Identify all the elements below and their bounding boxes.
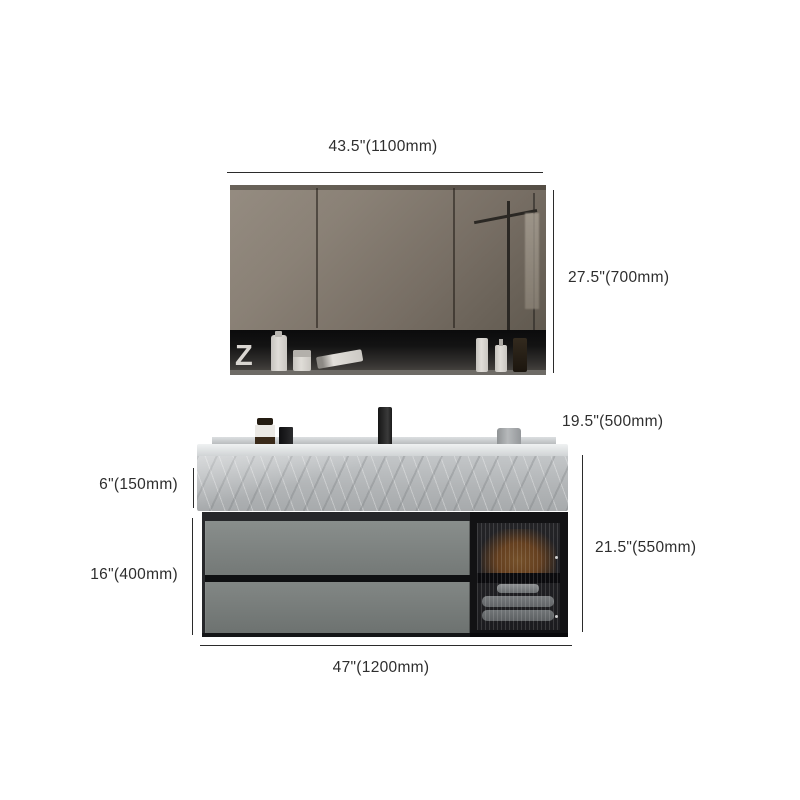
drawer-gap	[205, 575, 470, 582]
spray-bottle-nozzle	[499, 339, 503, 346]
dim-line-vanity-height	[582, 455, 583, 632]
mirror-reflection-frame	[507, 201, 510, 330]
door-knob-bottom	[555, 615, 558, 618]
drawer-bottom	[205, 582, 470, 633]
dim-line-mirror-width	[227, 172, 543, 173]
glass-door	[477, 523, 560, 630]
toothpaste-tube	[316, 349, 363, 369]
cabinet-bottom-shadow	[202, 633, 568, 637]
dim-label-counter-depth: 19.5"(500mm)	[562, 413, 663, 431]
drawer-top	[205, 521, 470, 575]
dim-line-apron-height	[193, 468, 194, 508]
mirror-reflection-highlight	[525, 213, 539, 309]
mirror-glass	[230, 185, 546, 330]
decor-letter-z: Z	[235, 343, 253, 370]
pump-bottle	[271, 335, 287, 371]
drawer-zone	[205, 521, 470, 633]
dim-line-vanity-width	[200, 645, 572, 646]
marble-apron	[197, 456, 568, 511]
mirror-open-shelf: Z	[230, 330, 546, 375]
amber-jar-label	[255, 425, 275, 437]
dim-label-mirror-height: 27.5"(700mm)	[568, 269, 669, 287]
amber-jar-cap	[257, 418, 273, 425]
door-knob-top	[555, 556, 558, 559]
dim-label-mirror-width: 43.5"(1100mm)	[328, 138, 437, 156]
dim-label-vanity-height: 21.5"(550mm)	[595, 539, 696, 557]
cosmetic-jar-lid	[293, 350, 311, 357]
slim-bottle	[476, 338, 488, 372]
mirror-top-edge	[230, 185, 546, 190]
spray-bottle	[495, 345, 507, 372]
dim-label-apron-height: 6"(150mm)	[0, 476, 178, 494]
pump-bottle-cap	[275, 331, 282, 337]
dropper-bottle	[513, 338, 527, 372]
dim-label-drawer-section-height: 16"(400mm)	[0, 566, 178, 584]
mirror-cabinet: Z	[230, 185, 546, 375]
fluted-glass-texture	[477, 523, 560, 630]
vanity-cabinet	[202, 512, 568, 637]
dim-label-vanity-width: 47"(1200mm)	[333, 659, 430, 677]
mirror-door-seam-right	[453, 188, 455, 328]
glass-cabinet	[470, 512, 568, 637]
product-dimension-image: 43.5"(1100mm) 27.5"(700mm) 19.5"(500mm) …	[0, 0, 800, 800]
dim-line-mirror-height	[553, 190, 554, 373]
dim-line-drawer-section-height	[192, 518, 193, 635]
mirror-door-seam-left	[316, 188, 318, 328]
